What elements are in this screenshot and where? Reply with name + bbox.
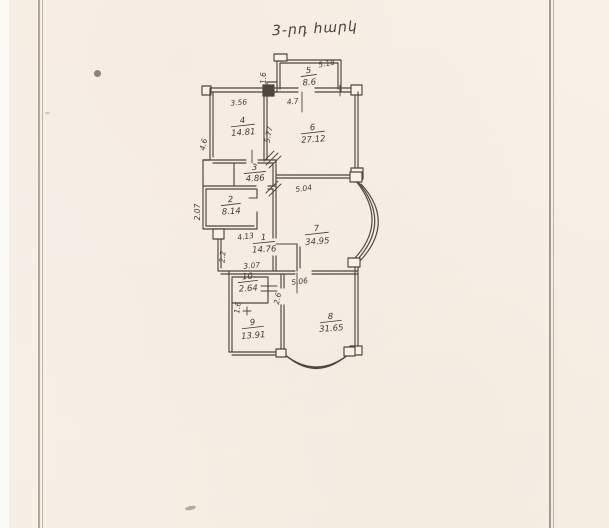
- dimension-label-8: 4.13: [237, 231, 255, 242]
- room-area: 13.91: [241, 330, 266, 342]
- room-area: 14.81: [231, 127, 256, 139]
- room-number: 3: [252, 163, 258, 173]
- room-area: 31.65: [319, 323, 344, 335]
- room-number: 8: [327, 312, 334, 322]
- dimension-label-3: 3.56: [230, 97, 248, 107]
- fixture-mark: [243, 307, 251, 315]
- dimension-label-13: 1.6: [232, 301, 243, 314]
- room-label-2: 2 8.14: [220, 194, 241, 217]
- room-label-4: 4 14.81: [230, 115, 256, 139]
- bay-window-bottom: [276, 347, 355, 369]
- room-label-6: 6 27.12: [300, 122, 326, 146]
- room-area: 14.76: [252, 244, 277, 255]
- room-area: 8.6: [302, 77, 317, 88]
- room-number: 1: [261, 233, 267, 243]
- room-number: 6: [309, 123, 316, 133]
- wall-block: [213, 229, 224, 239]
- room-label-10: 10 2.64: [237, 271, 258, 294]
- dimension-label-7: 2.07: [193, 203, 202, 220]
- wall-junction-block: [263, 85, 274, 96]
- vent-block: [274, 54, 287, 61]
- dimension-label-2: 4.7: [286, 96, 299, 106]
- room-area: 2.64: [239, 283, 259, 294]
- room-label-7: 7 34.95: [304, 223, 330, 248]
- dimension-label-10: 3.07: [243, 260, 261, 270]
- room-label-9: 9 13.91: [240, 317, 266, 342]
- dimension-label-4: 4.6: [198, 137, 209, 151]
- dimension-label-9: 2.2: [218, 250, 228, 263]
- room-area: 34.95: [305, 236, 330, 248]
- floor-plan-drawing: 5 8.6 4 14.81 6 27.12 3 4.86 2 8.14 7 34…: [0, 0, 609, 528]
- room-label-5: 5 8.6: [300, 65, 317, 88]
- wall-block: [351, 85, 362, 95]
- room-area: 27.12: [301, 134, 326, 146]
- room-number: 7: [313, 224, 320, 234]
- room-number: 5: [305, 66, 311, 76]
- room-label-3: 3 4.86: [243, 162, 266, 184]
- dimension-label-5: 5.77: [263, 125, 275, 143]
- dimension-label-1: 1.6: [259, 72, 268, 84]
- room-number: 2: [227, 195, 233, 205]
- room-number: 9: [249, 318, 255, 328]
- dimension-label-12: 2.6: [272, 291, 283, 305]
- dimension-label-0: 5.18: [318, 58, 336, 70]
- dimension-label-11: 5.06: [291, 276, 309, 287]
- bay-window-right: [348, 172, 378, 267]
- scanned-floor-plan-page: 3-րդ հարկ: [0, 0, 609, 528]
- room-number: 4: [239, 116, 245, 126]
- room-area: 4.86: [245, 173, 265, 184]
- room-label-8: 8 31.65: [318, 311, 344, 335]
- room-area: 8.14: [222, 206, 242, 217]
- dimension-label-6: 5.04: [295, 183, 313, 194]
